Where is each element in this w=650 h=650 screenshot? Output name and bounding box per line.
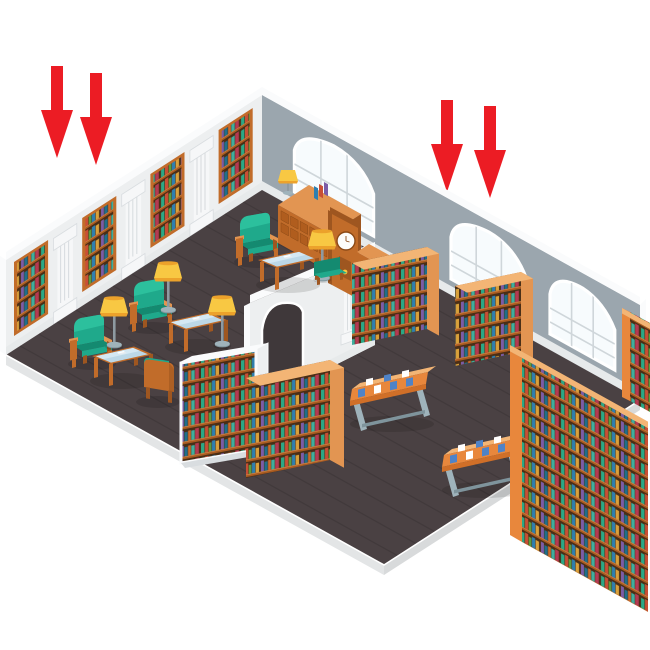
down-arrow-icon [41, 66, 73, 158]
arrow-group-left [41, 66, 112, 165]
down-arrow-icon [80, 73, 112, 165]
down-arrow-icon [474, 106, 506, 198]
arrow-group-right [431, 100, 506, 198]
library-illustration [0, 0, 650, 650]
library-scene-svg [0, 0, 650, 650]
down-arrow-icon [431, 100, 463, 192]
freestanding-bookshelf [622, 308, 650, 412]
